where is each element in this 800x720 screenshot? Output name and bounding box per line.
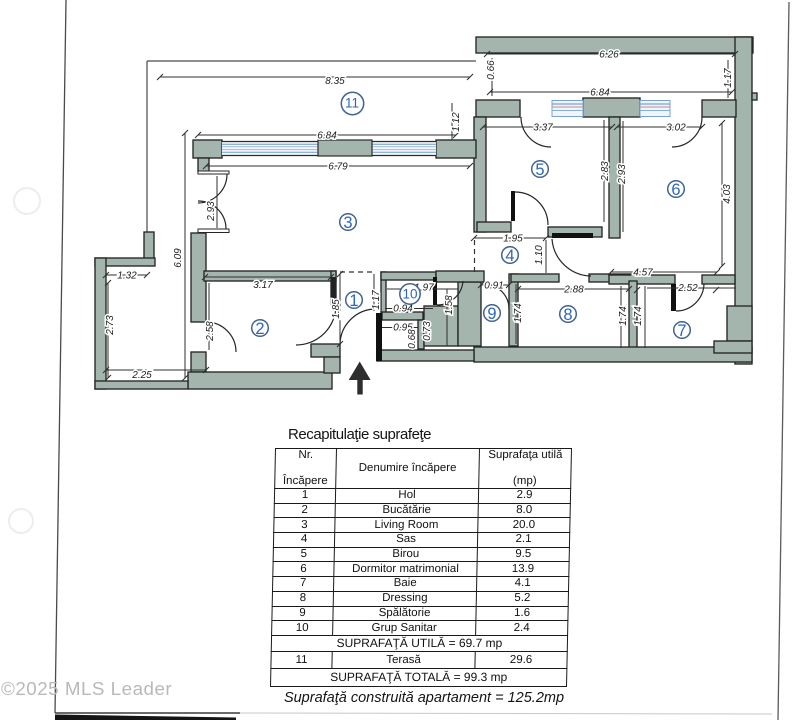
svg-text:1.10: 1.10	[534, 245, 545, 265]
svg-text:0.91: 0.91	[484, 281, 503, 292]
svg-text:6.84: 6.84	[590, 88, 610, 99]
svg-text:2.52: 2.52	[677, 283, 698, 294]
svg-text:3.17: 3.17	[253, 280, 273, 291]
svg-text:8.35: 8.35	[325, 76, 345, 87]
svg-text:0.66: 0.66	[486, 60, 497, 80]
svg-text:1.17: 1.17	[723, 68, 734, 88]
svg-text:9: 9	[487, 305, 496, 323]
svg-text:7: 7	[677, 322, 686, 340]
svg-text:3.37: 3.37	[533, 123, 553, 134]
svg-text:2: 2	[255, 320, 264, 338]
svg-text:3: 3	[343, 214, 352, 232]
svg-text:1.74: 1.74	[618, 306, 629, 326]
svg-text:1: 1	[349, 292, 358, 310]
svg-text:8: 8	[563, 306, 572, 324]
svg-text:5: 5	[535, 161, 544, 179]
svg-text:4.57: 4.57	[633, 268, 653, 279]
svg-text:1.32: 1.32	[117, 271, 137, 282]
svg-text:2.93: 2.93	[206, 201, 217, 222]
svg-text:1.12: 1.12	[451, 112, 462, 132]
svg-text:0.68: 0.68	[407, 329, 418, 349]
svg-text:4.03: 4.03	[722, 184, 733, 204]
svg-text:2.83: 2.83	[600, 161, 611, 182]
svg-text:1.85: 1.85	[331, 299, 342, 319]
svg-text:6.09: 6.09	[173, 248, 184, 268]
svg-text:0.73: 0.73	[422, 321, 433, 341]
svg-text:0.94: 0.94	[393, 304, 413, 315]
svg-text:4: 4	[505, 247, 514, 265]
svg-text:6: 6	[671, 181, 680, 199]
svg-text:1.17: 1.17	[371, 290, 382, 310]
svg-text:2.58: 2.58	[205, 321, 216, 342]
svg-text:10: 10	[402, 287, 417, 302]
svg-text:2.88: 2.88	[563, 285, 584, 296]
svg-text:2.93: 2.93	[617, 164, 628, 185]
svg-text:2.73: 2.73	[105, 315, 116, 336]
svg-text:3.02: 3.02	[666, 123, 686, 134]
svg-text:1.74: 1.74	[513, 303, 524, 323]
svg-text:6.26: 6.26	[599, 50, 619, 61]
svg-text:11: 11	[345, 96, 359, 111]
svg-text:1.95: 1.95	[503, 234, 523, 245]
svg-text:2.25: 2.25	[131, 370, 152, 381]
svg-text:6.84: 6.84	[317, 131, 337, 142]
svg-text:1.74: 1.74	[633, 306, 644, 326]
svg-text:6.79: 6.79	[328, 162, 348, 173]
svg-text:1.58: 1.58	[444, 295, 455, 315]
